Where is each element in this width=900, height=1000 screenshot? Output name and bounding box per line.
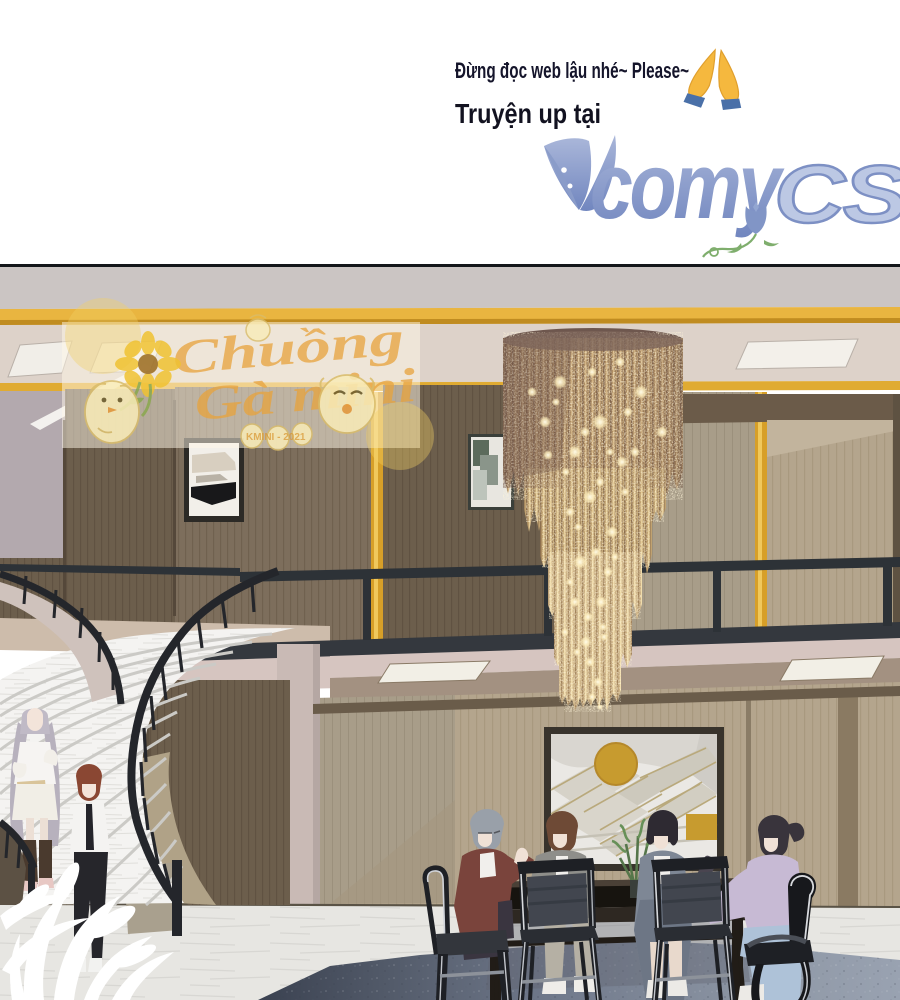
svg-text:Đừng đọc web lậu nhé~ Please~: Đừng đọc web lậu nhé~ Please~ (455, 58, 689, 83)
svg-text:CS: CS (774, 149, 900, 240)
svg-text:KMINI - 2021: KMINI - 2021 (246, 432, 306, 443)
svg-text:Truyện up tại: Truyện up tại (455, 98, 601, 129)
